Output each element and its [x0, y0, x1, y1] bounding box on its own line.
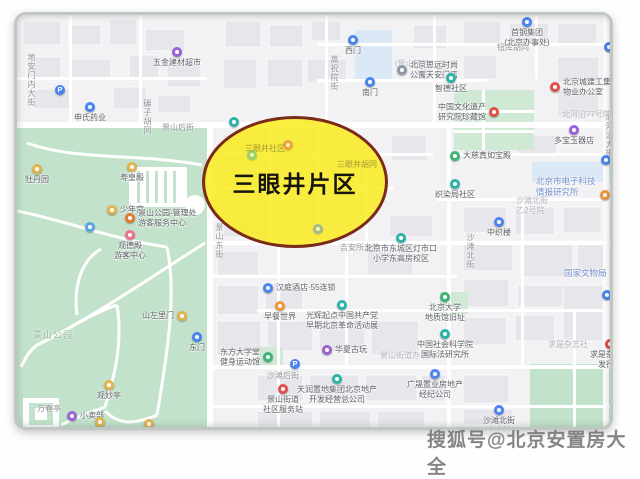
map-pin-blue[interactable]: 广晟置业房地产经纪公司 — [430, 369, 440, 379]
map-pin-red[interactable]: 中国文化遗产研究院珍藏馆 — [489, 107, 499, 117]
area-label: 三眼井社区 — [245, 144, 285, 154]
poi-label: 智德社区 — [435, 84, 467, 94]
poi-label: 牡丹园 — [25, 175, 49, 185]
highlight-ellipse: 三眼井片区 — [202, 116, 388, 248]
map-pin-blue[interactable]: 中织楼 — [494, 217, 504, 227]
map-pin-yellow[interactable]: 观妙亭 — [104, 380, 114, 390]
poi-label: 观德殿游客中心 — [114, 241, 146, 260]
map-pin-blue[interactable]: 沙滩北街充电站 — [494, 405, 504, 415]
map-pin-yellow[interactable] — [95, 417, 105, 427]
poi-label: 西门 — [345, 46, 361, 56]
lightblue-block — [355, 30, 392, 82]
area-label: 求是杂志社 — [548, 340, 588, 350]
map-pin-teal[interactable]: 中国社会科学院国际法研究所 — [440, 329, 450, 339]
map-pin-orange[interactable]: 早餐世界 — [275, 301, 285, 311]
poi-label: 山左里门 — [142, 311, 174, 321]
area-label: 北河沿77号院 — [562, 110, 611, 120]
area-label: 国家文物局 — [564, 268, 607, 279]
map-photo: 五金建材超市P申氏药业西门南门北京思远时尚公寓天安门店首钢集团(北京办事处)智德… — [14, 12, 613, 430]
map-pin-teal[interactable]: 织染局社区 — [450, 179, 460, 189]
poi-label: 北京大学地质馆旧址 — [425, 303, 465, 322]
map-pin-purple[interactable]: 多宝玉器店 — [569, 125, 579, 135]
map-pin-blue[interactable]: 西门 — [348, 35, 358, 45]
poi-label: 中织楼 — [487, 228, 511, 238]
area-label: 北京市电子科技情报研究所 — [536, 176, 596, 197]
map-pin-green[interactable]: 大慈真如宝殿 — [450, 151, 460, 161]
map-pin-green[interactable]: 北京大学地质馆旧址 — [440, 292, 450, 302]
poi-label: 织染局社区 — [435, 190, 475, 200]
poi-label: 寿皇殿 — [120, 173, 144, 183]
map-pin-red[interactable]: 北京城建工集团物业办公室 — [550, 82, 560, 92]
map-pin-teal[interactable]: 光辉起点中国共产党早期北京革命活动展 — [337, 300, 347, 310]
map-pin-blue[interactable] — [313, 224, 323, 234]
poi-label: 北京市东城区灯市口小学东高房校区 — [365, 244, 437, 263]
map-pin-darkorange[interactable]: 景山公园-管理处游客服务中心 — [125, 213, 135, 223]
poi-label: 观妙亭 — [97, 391, 121, 401]
map-pin-red[interactable]: 景山街道社区服务站 — [278, 384, 288, 394]
map-pin-parkblue[interactable] — [85, 222, 95, 232]
street-label: 嵩祝院街 — [329, 55, 339, 91]
poi-label: 中国文化遗产研究院珍藏馆 — [438, 102, 486, 121]
area-label: 景山公园 — [33, 330, 73, 341]
map-pin-purple[interactable]: 五金建材超市 — [172, 47, 182, 57]
map-pin-red[interactable]: 求是杂志社发行部 — [605, 339, 613, 349]
street-label: 景山后街 — [162, 123, 194, 133]
poi-label: 景山街道社区服务站 — [263, 395, 303, 414]
poi-label: 东门 — [189, 343, 205, 353]
map-pin-teal[interactable]: 天润置地集团北京地产开发经营总公司 — [332, 374, 342, 384]
street-label: 沙滩后街 — [267, 371, 299, 381]
poi-label: 多宝玉器店 — [554, 136, 594, 146]
map-pin-blue[interactable]: 南门 — [365, 77, 375, 87]
poi-label: 中国社会科学院国际法研究所 — [417, 340, 473, 359]
map-pin-blue-parking[interactable]: P — [55, 85, 65, 95]
map-pin-yellow[interactable]: 山左里门 — [177, 311, 187, 321]
map-pin-blue-parking[interactable]: P — [290, 359, 300, 369]
map-pin-purple[interactable]: 华夏古玩 — [322, 345, 332, 355]
poi-label: 五金建材超市 — [153, 58, 201, 68]
map-pin-teal[interactable]: 北京市东城区灯市口小学东高房校区 — [396, 233, 406, 243]
map-pin-yellow[interactable]: 牡丹园 — [32, 164, 42, 174]
map-pin-blue[interactable]: 申氏药业 — [85, 102, 95, 112]
street-label: 沙滩北街 — [465, 233, 475, 269]
poi-label: 大慈真如宝殿 — [463, 151, 511, 161]
poi-label: 南门 — [362, 88, 378, 98]
map-pin-gray[interactable]: 北京思远时尚公寓天安门店 — [397, 65, 407, 75]
map-pin-purple[interactable]: 小卖部 — [67, 411, 77, 421]
map-pin-blue[interactable] — [604, 42, 613, 52]
map-pin-blue[interactable]: 首钢集团(北京办事处) — [522, 17, 532, 27]
map-pin-teal[interactable] — [229, 117, 239, 127]
poi-label: 广晟置业房地产经纪公司 — [407, 380, 463, 399]
watermark-text: 搜狐号@北京安置房大全 — [427, 425, 640, 479]
street-label: 万春亭 — [37, 404, 61, 414]
map-pin-blue[interactable] — [601, 155, 611, 165]
map-pin-green[interactable]: 东方大学堂健身运动馆 — [263, 352, 273, 362]
street-label: 地安门内大街 — [26, 53, 36, 107]
area-label: 沙滩北街乙2号院 — [516, 196, 548, 216]
highlight-area-label: 三眼井片区 — [233, 165, 358, 199]
map-pin-teal[interactable]: 智德社区 — [446, 73, 456, 83]
street-label: 碾子胡同 — [142, 99, 152, 135]
poi-label: 首钢集团(北京办事处) — [504, 28, 549, 47]
poi-label: 汉庭酒店·55连锁 — [276, 283, 336, 293]
poi-label: 北京城建工集团物业办公室 — [563, 77, 613, 96]
poi-label: 早餐世界 — [264, 312, 296, 322]
map-pin-blue[interactable]: 东门 — [192, 332, 202, 342]
map-pin-blue[interactable] — [602, 290, 612, 300]
poi-label: 华夏古玩 — [335, 345, 367, 355]
green-block-southeast — [530, 364, 613, 430]
map-pin-blue[interactable]: 汉庭酒店·55连锁 — [263, 283, 273, 293]
poi-label: 求是杂志社发行部 — [590, 350, 613, 369]
map-layer: 五金建材超市P申氏药业西门南门北京思远时尚公寓天安门店首钢集团(北京办事处)智德… — [17, 15, 610, 427]
poi-label: 东方大学堂健身运动馆 — [220, 347, 260, 366]
map-pin-orange[interactable] — [600, 190, 610, 200]
map-pin-yellow[interactable]: 寿皇殿 — [127, 162, 137, 172]
area-label: 三眼井胡同 — [337, 160, 377, 170]
poi-label: 申氏药业 — [74, 113, 106, 123]
poi-label: 光辉起点中国共产党早期北京革命活动展 — [306, 311, 378, 330]
poi-label: 景山公园-管理处游客服务中心 — [138, 208, 197, 227]
street-label: 景山东街 — [214, 223, 224, 259]
map-pin-yellow[interactable]: 少年宫 — [107, 205, 117, 215]
poi-label: 天润置地集团北京地产开发经营总公司 — [297, 385, 377, 404]
map-pin-yellow[interactable] — [144, 419, 154, 429]
map-pin-pink[interactable]: 观德殿游客中心 — [125, 230, 135, 240]
